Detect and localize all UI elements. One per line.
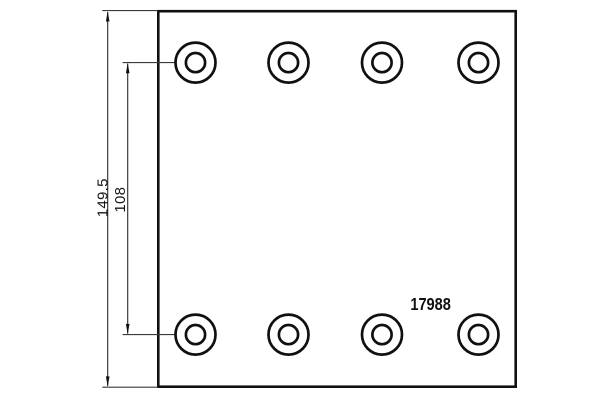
svg-text:149.5: 149.5 [94,178,111,217]
svg-text:17988: 17988 [410,295,451,315]
svg-text:108: 108 [112,187,129,213]
